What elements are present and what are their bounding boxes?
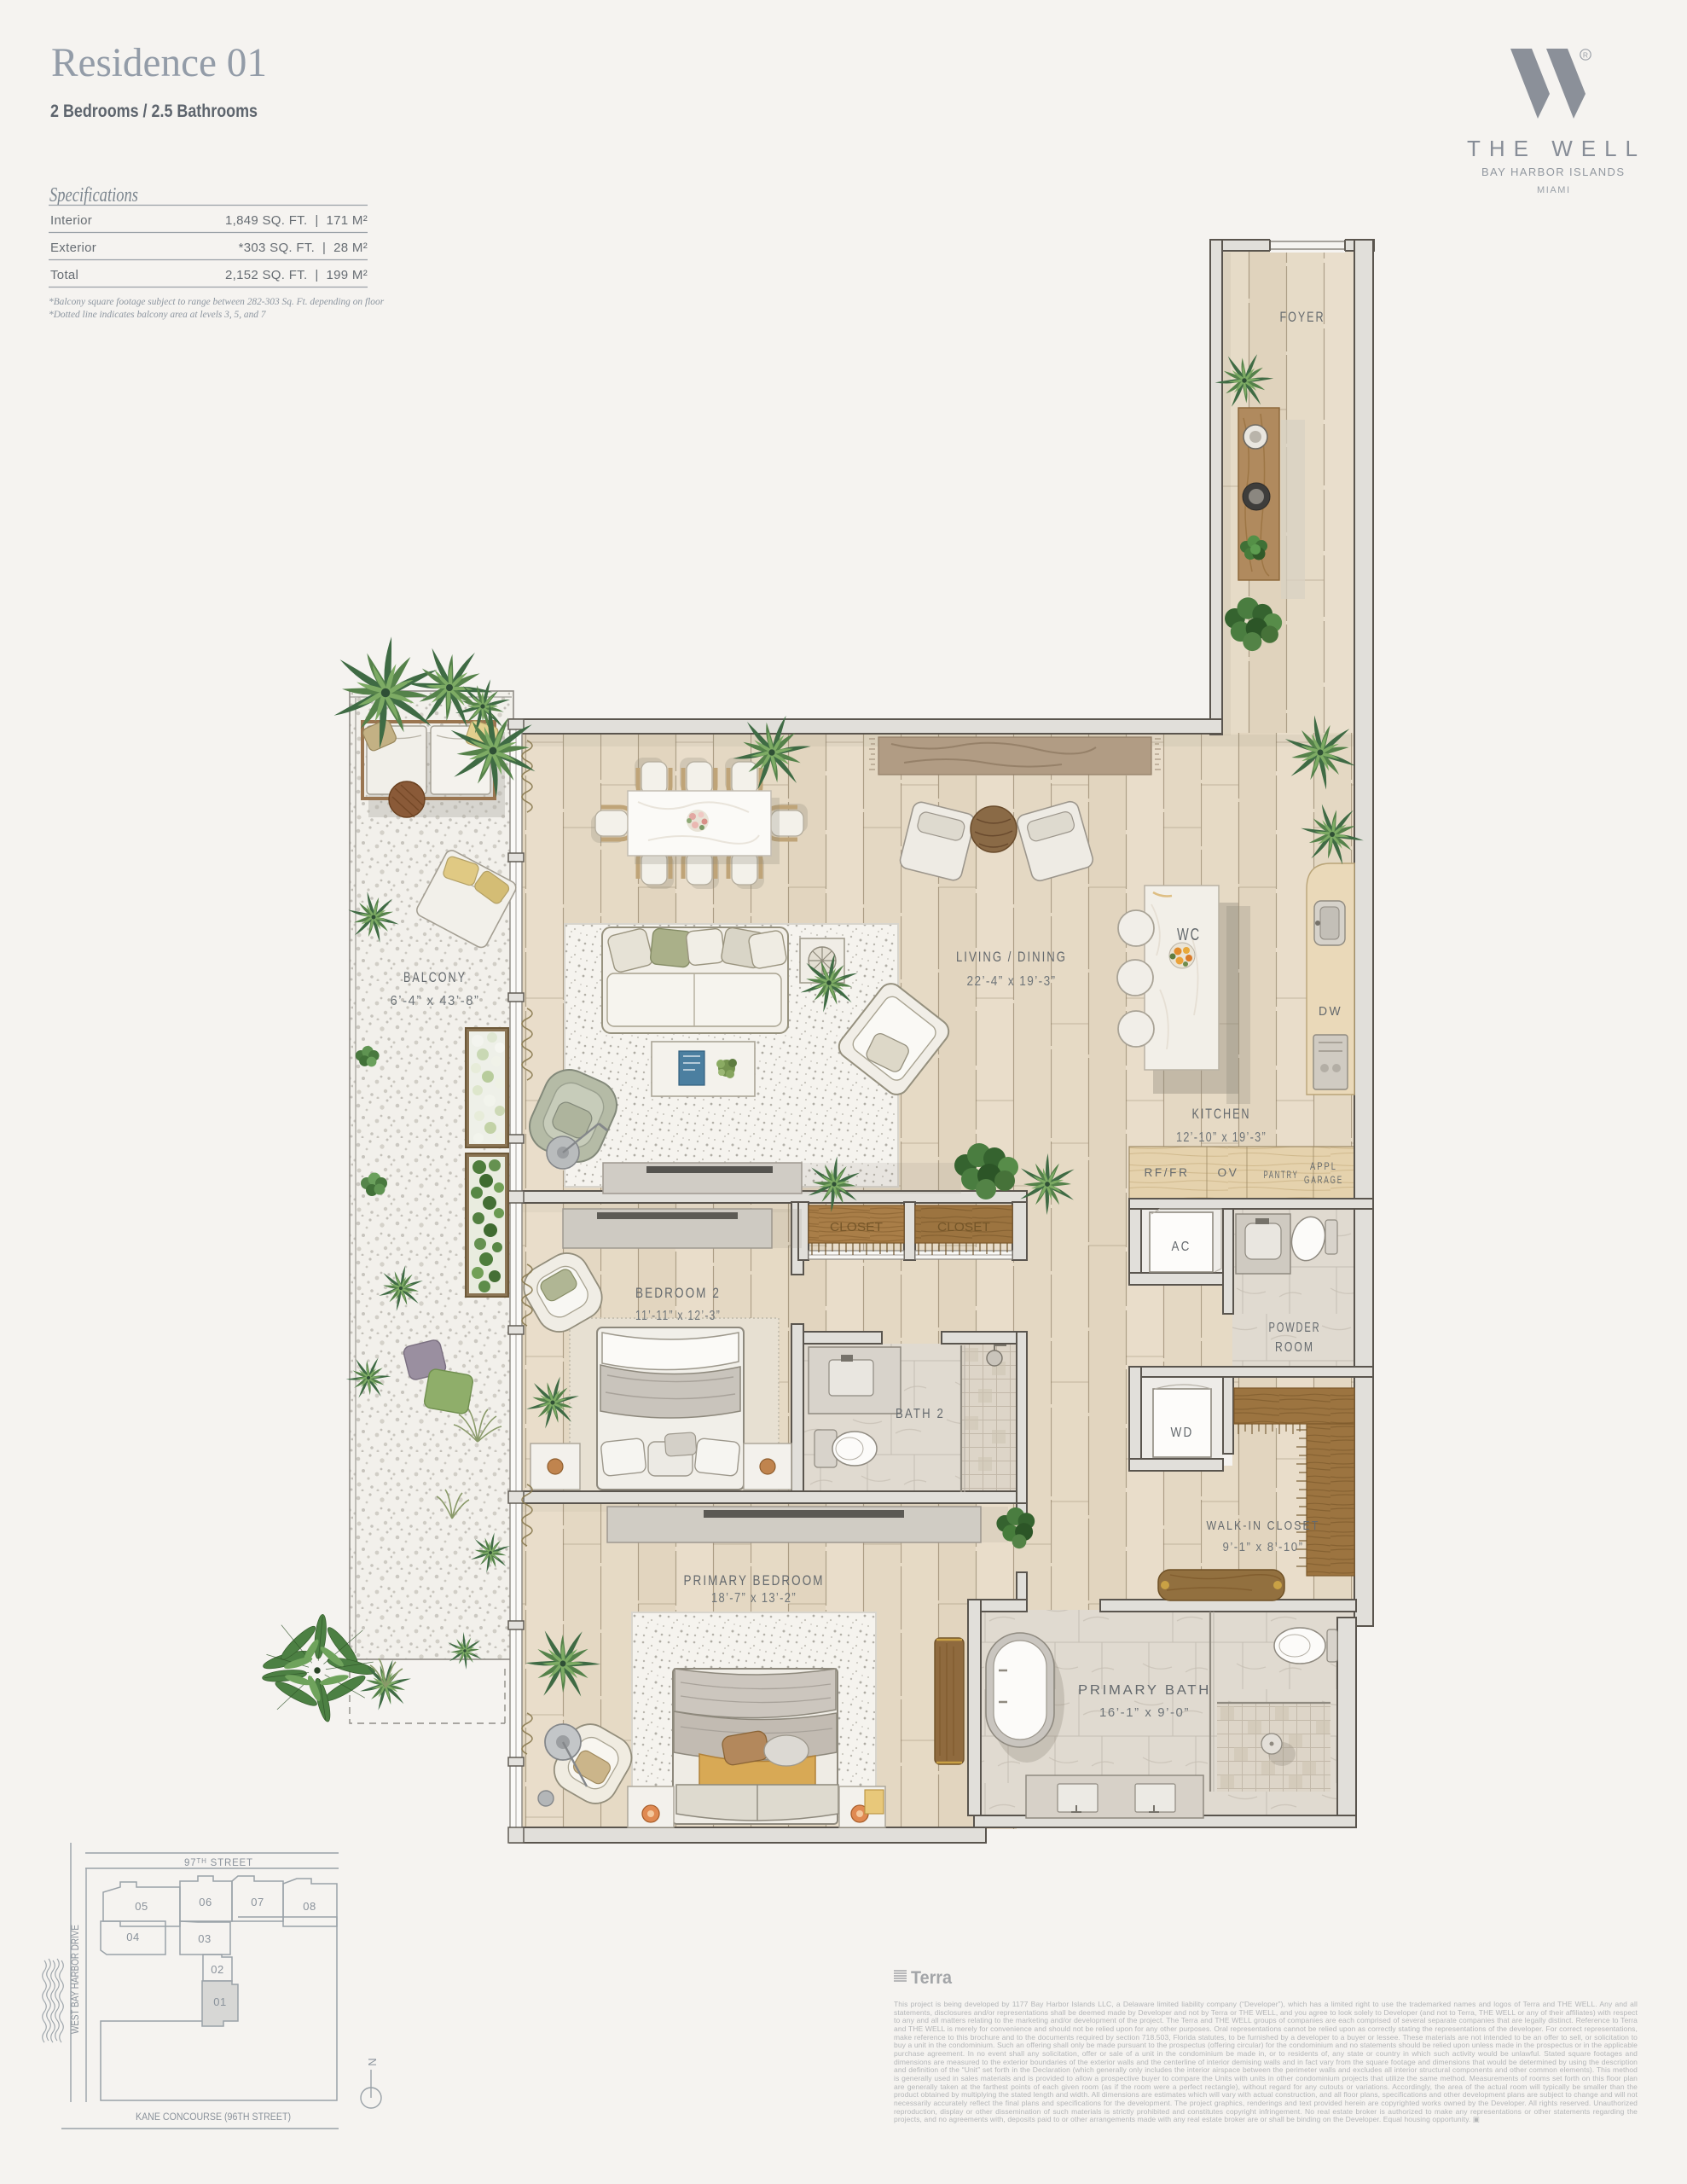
svg-text:Exterior: Exterior	[50, 241, 96, 255]
svg-text:MIAMI: MIAMI	[1537, 185, 1569, 195]
svg-text:*Dotted line indicates balcony: *Dotted line indicates balcony area at l…	[49, 310, 267, 320]
svg-text:WALK-IN CLOSET: WALK-IN CLOSET	[1207, 1519, 1320, 1533]
svg-text:1,849 SQ. FT. | 171 M²: 1,849 SQ. FT. | 171 M²	[225, 213, 368, 228]
svg-text:*303 SQ. FT. | 28 M²: *303 SQ. FT. | 28 M²	[239, 241, 368, 255]
svg-text:WC: WC	[1177, 926, 1201, 944]
svg-text:CLOSET: CLOSET	[830, 1221, 883, 1234]
svg-text:DW: DW	[1319, 1004, 1342, 1019]
svg-text:RF/FR: RF/FR	[1145, 1166, 1190, 1179]
svg-text:04: 04	[126, 1931, 139, 1943]
svg-text:11’-11” x 12’-3”: 11’-11” x 12’-3”	[635, 1309, 721, 1323]
svg-text:AC: AC	[1172, 1240, 1191, 1254]
svg-text:CLOSET: CLOSET	[937, 1221, 990, 1234]
svg-text:ROOM: ROOM	[1275, 1340, 1314, 1355]
svg-text:BATH 2: BATH 2	[896, 1407, 945, 1421]
svg-text:9’-1” x 8’-10”: 9’-1” x 8’-10”	[1223, 1541, 1304, 1554]
svg-text:BALCONY: BALCONY	[403, 970, 467, 985]
svg-text:WEST BAY HARBOR DRIVE: WEST BAY HARBOR DRIVE	[71, 1925, 81, 2034]
svg-text:07: 07	[251, 1896, 264, 1908]
svg-text:6’-4” x 43’-8”: 6’-4” x 43’-8”	[391, 994, 480, 1008]
svg-text:03: 03	[198, 1932, 211, 1945]
svg-text:08: 08	[303, 1900, 316, 1913]
svg-text:KANE CONCOURSE (96TH STREET): KANE CONCOURSE (96TH STREET)	[136, 2112, 291, 2123]
svg-text:97TH STREET: 97TH STREET	[184, 1857, 253, 1868]
svg-text:16’-1” x 9’-0”: 16’-1” x 9’-0”	[1099, 1705, 1190, 1720]
svg-text:2 Bedrooms / 2.5 Bathrooms: 2 Bedrooms / 2.5 Bathrooms	[50, 101, 258, 121]
svg-text:BEDROOM 2: BEDROOM 2	[635, 1285, 721, 1301]
svg-text:2,152 SQ. FT. | 199 M²: 2,152 SQ. FT. | 199 M²	[225, 268, 368, 282]
svg-text:22’-4” x 19’-3”: 22’-4” x 19’-3”	[967, 974, 1057, 989]
svg-text:LIVING / DINING: LIVING / DINING	[956, 949, 1067, 965]
svg-text:PANTRY: PANTRY	[1264, 1169, 1299, 1181]
svg-text:18’-7” x 13’-2”: 18’-7” x 13’-2”	[711, 1591, 797, 1606]
svg-text:*Balcony square footage subjec: *Balcony square footage subject to range…	[49, 297, 385, 307]
svg-text:PRIMARY BATH: PRIMARY BATH	[1078, 1683, 1211, 1698]
svg-text:FOYER: FOYER	[1280, 309, 1325, 325]
svg-text:01: 01	[213, 1995, 226, 2008]
svg-text:APPL: APPL	[1310, 1160, 1337, 1172]
svg-text:KITCHEN: KITCHEN	[1192, 1106, 1251, 1122]
svg-text:Interior: Interior	[50, 213, 92, 228]
svg-text:POWDER: POWDER	[1269, 1321, 1321, 1335]
svg-text:02: 02	[211, 1963, 223, 1976]
svg-text:Residence 01: Residence 01	[51, 40, 267, 85]
svg-text:OV: OV	[1218, 1166, 1239, 1179]
svg-text:R: R	[1583, 51, 1588, 60]
svg-text:Specifications: Specifications	[49, 184, 138, 206]
svg-text:Terra: Terra	[911, 1968, 952, 1988]
svg-text:GARAGE: GARAGE	[1304, 1174, 1343, 1186]
svg-text:BAY HARBOR ISLANDS: BAY HARBOR ISLANDS	[1481, 166, 1624, 178]
svg-text:N: N	[366, 2058, 379, 2065]
svg-text:WD: WD	[1171, 1426, 1194, 1440]
svg-text:06: 06	[199, 1896, 212, 1908]
svg-text:THE WELL: THE WELL	[1467, 136, 1638, 161]
svg-text:12’-10” x 19’-3”: 12’-10” x 19’-3”	[1176, 1130, 1267, 1145]
svg-text:05: 05	[135, 1900, 148, 1913]
svg-text:Total: Total	[50, 268, 78, 282]
svg-text:PRIMARY BEDROOM: PRIMARY BEDROOM	[684, 1572, 825, 1589]
